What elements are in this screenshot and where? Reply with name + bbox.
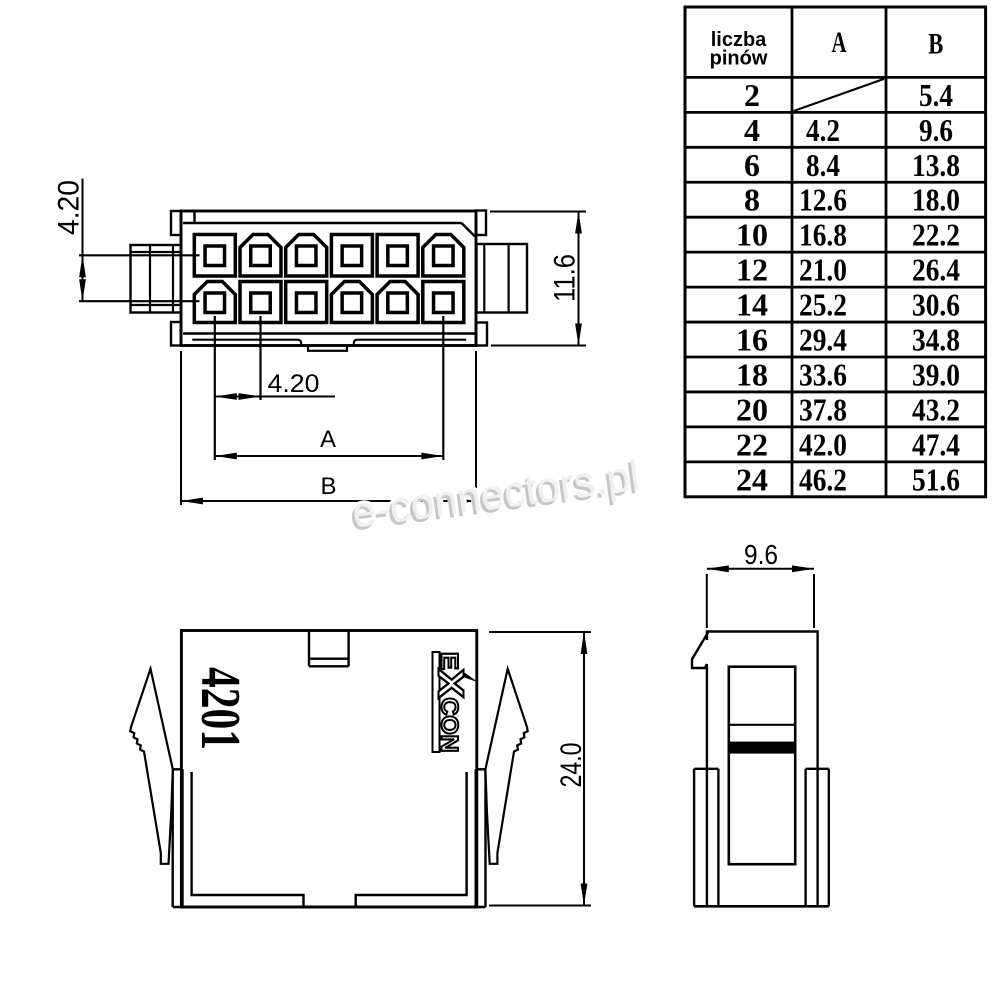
svg-text:16: 16 <box>736 322 768 358</box>
svg-text:4201: 4201 <box>189 667 251 750</box>
svg-text:4.20: 4.20 <box>53 180 86 235</box>
svg-text:A: A <box>832 26 847 59</box>
svg-text:B: B <box>320 473 336 500</box>
svg-text:42.0: 42.0 <box>799 426 847 462</box>
svg-text:9.6: 9.6 <box>744 539 778 570</box>
svg-text:6: 6 <box>744 147 760 183</box>
svg-text:4.20: 4.20 <box>268 370 320 398</box>
svg-text:18.0: 18.0 <box>912 182 960 218</box>
svg-text:24.0: 24.0 <box>555 743 588 788</box>
svg-text:8: 8 <box>744 182 760 218</box>
svg-text:11.6: 11.6 <box>549 254 582 302</box>
svg-text:29.4: 29.4 <box>799 322 847 358</box>
svg-text:14: 14 <box>736 287 768 323</box>
svg-text:43.2: 43.2 <box>912 391 960 427</box>
svg-text:e-connectors.pl: e-connectors.pl <box>349 452 642 538</box>
svg-text:25.2: 25.2 <box>799 287 847 323</box>
svg-text:21.0: 21.0 <box>799 252 847 288</box>
svg-text:20: 20 <box>736 391 768 427</box>
svg-text:A: A <box>320 426 336 453</box>
svg-text:47.4: 47.4 <box>912 426 960 462</box>
svg-text:51.6: 51.6 <box>912 461 960 497</box>
svg-text:34.8: 34.8 <box>912 322 960 358</box>
svg-text:4.2: 4.2 <box>806 112 840 148</box>
svg-text:16.8: 16.8 <box>799 217 847 253</box>
svg-text:4: 4 <box>744 112 760 148</box>
svg-text:X: X <box>431 669 472 699</box>
svg-text:12: 12 <box>736 252 768 288</box>
svg-text:37.8: 37.8 <box>799 391 847 427</box>
svg-text:9.6: 9.6 <box>919 112 953 148</box>
svg-text:CON: CON <box>436 698 463 753</box>
svg-text:E: E <box>436 652 463 670</box>
svg-text:13.8: 13.8 <box>912 147 960 183</box>
svg-text:22: 22 <box>736 426 768 462</box>
svg-text:46.2: 46.2 <box>799 461 847 497</box>
svg-text:22.2: 22.2 <box>912 217 960 253</box>
svg-text:12.6: 12.6 <box>799 182 847 218</box>
svg-text:pinów: pinów <box>710 48 768 70</box>
svg-text:30.6: 30.6 <box>912 287 960 323</box>
svg-text:33.6: 33.6 <box>799 356 847 392</box>
svg-text:B: B <box>928 28 943 61</box>
svg-text:26.4: 26.4 <box>912 252 960 288</box>
svg-text:2: 2 <box>744 77 760 113</box>
svg-text:10: 10 <box>736 217 768 253</box>
svg-text:39.0: 39.0 <box>912 356 960 392</box>
svg-text:5.4: 5.4 <box>919 77 953 113</box>
svg-text:8.4: 8.4 <box>806 147 840 183</box>
svg-text:24: 24 <box>736 461 768 497</box>
svg-text:18: 18 <box>736 356 768 392</box>
